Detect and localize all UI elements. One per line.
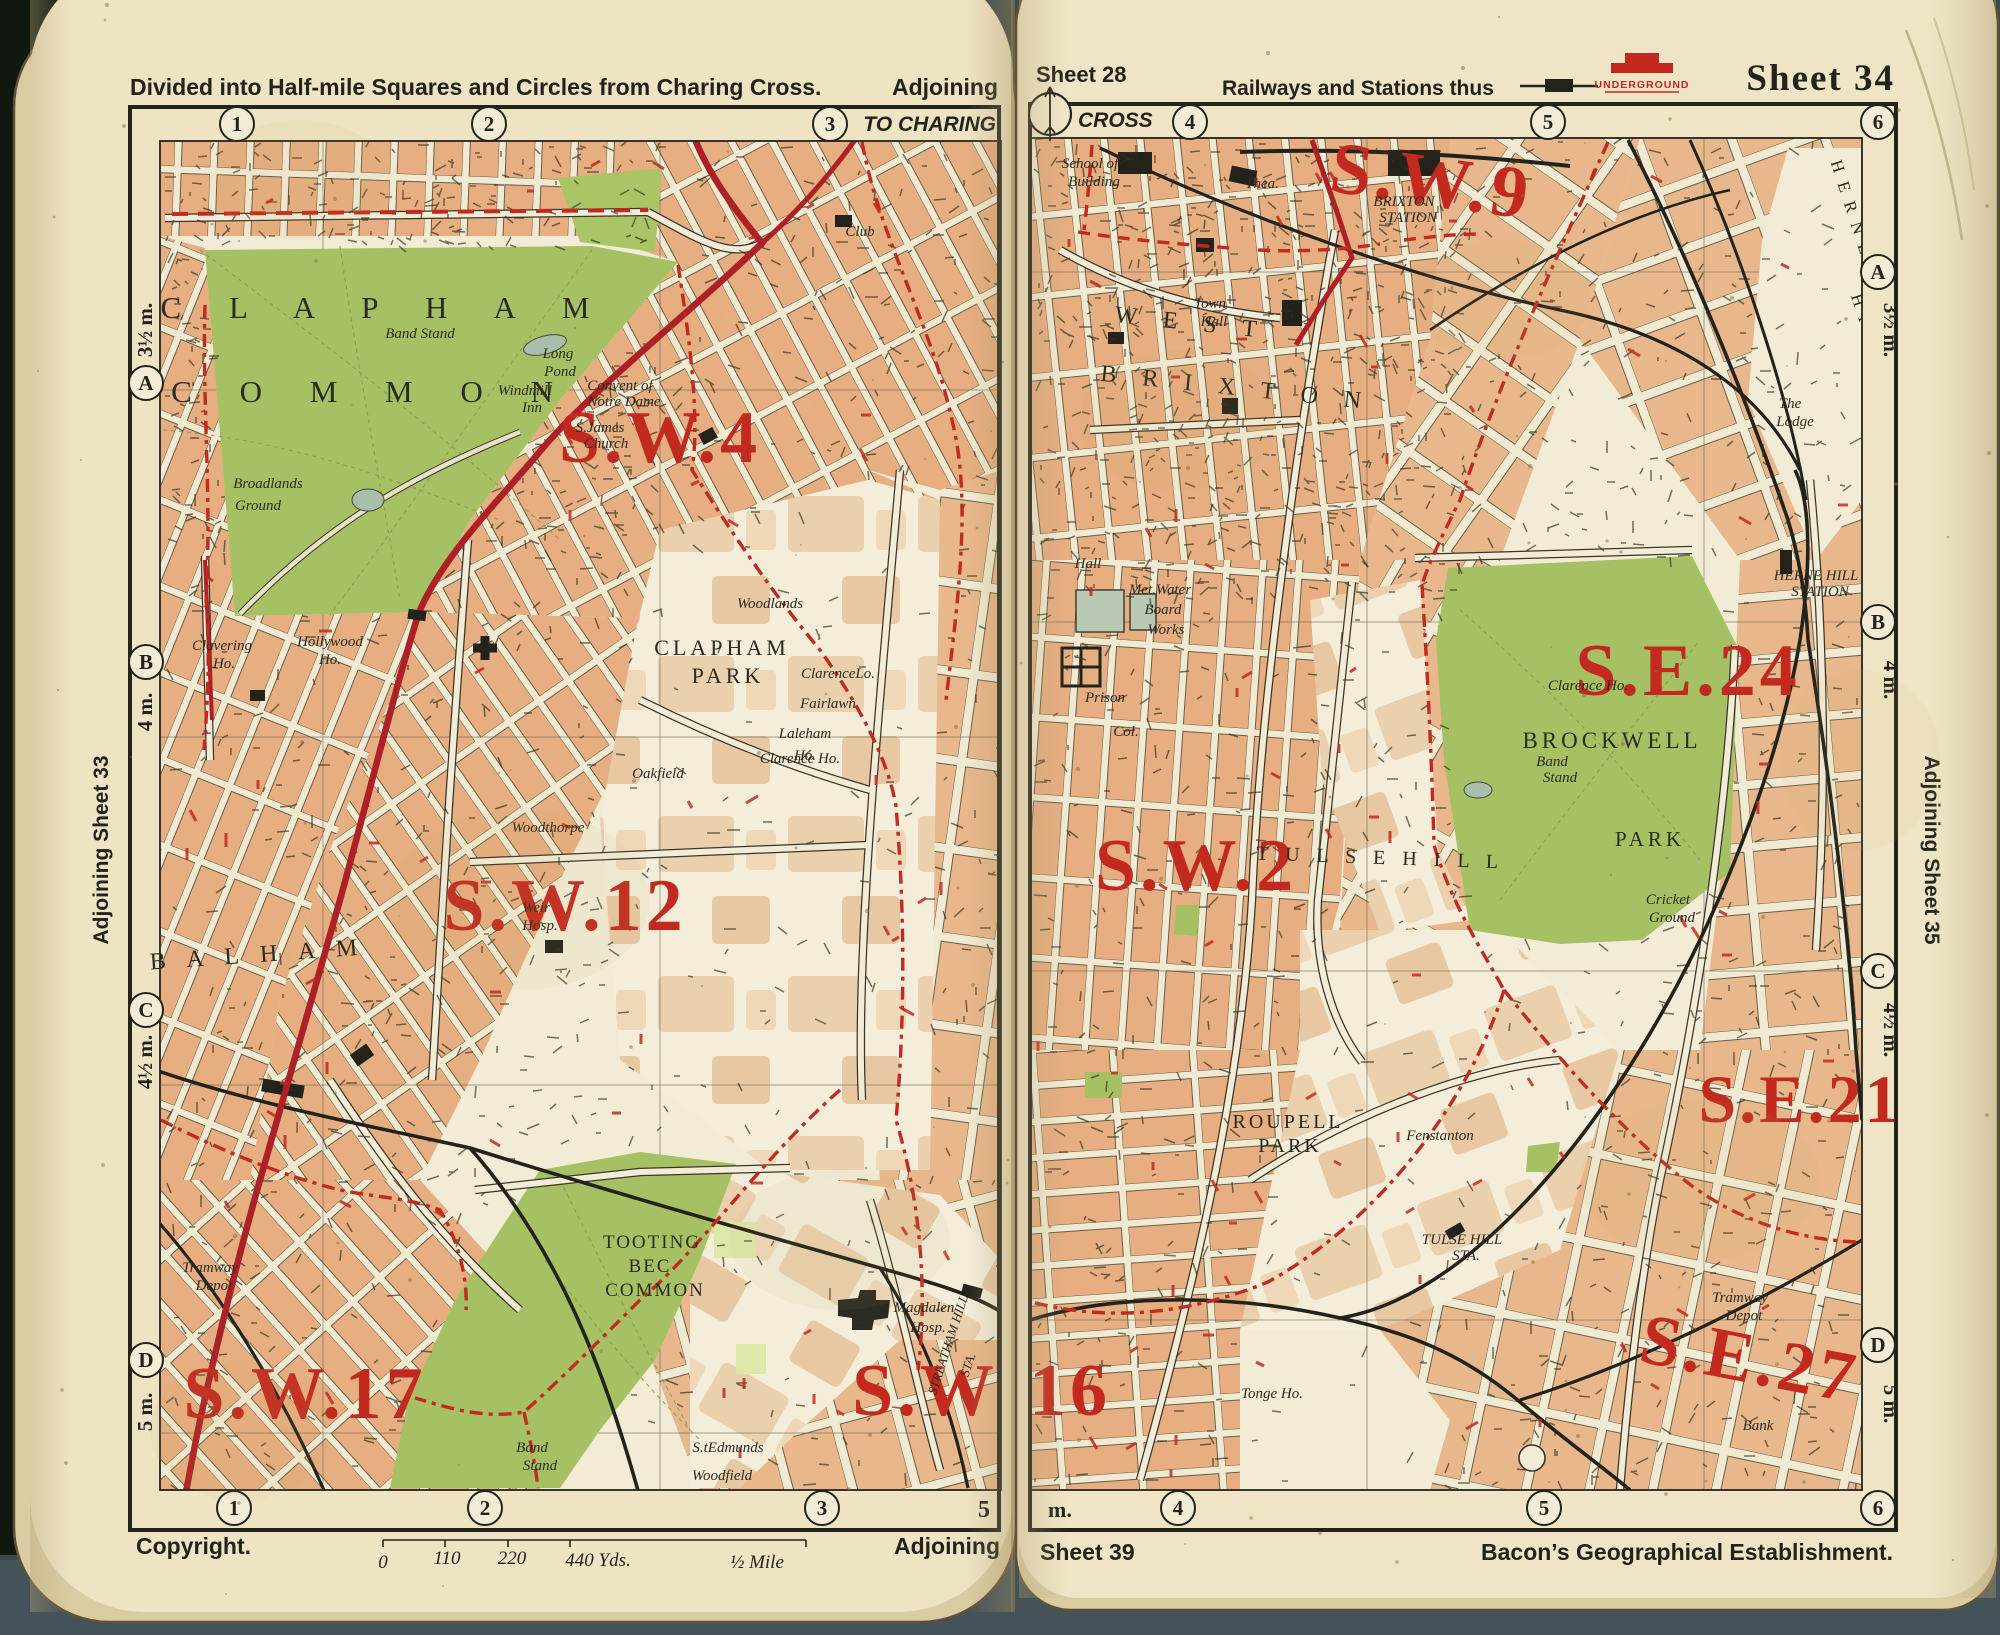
svg-text:Inn: Inn — [521, 400, 542, 416]
svg-text:Convent of: Convent of — [587, 378, 654, 394]
svg-text:Notre Dame: Notre Dame — [586, 394, 661, 410]
svg-text:Fairlawn: Fairlawn — [799, 696, 856, 712]
svg-text:5: 5 — [1539, 1496, 1550, 1520]
svg-text:5 m.: 5 m. — [1879, 1385, 1903, 1424]
svg-text:A: A — [138, 371, 154, 395]
svg-text:C L A P H A M: C L A P H A M — [161, 290, 610, 325]
svg-text:4: 4 — [1173, 1496, 1184, 1520]
svg-text:Sheet 34: Sheet 34 — [1746, 58, 1895, 99]
svg-text:Ground: Ground — [1649, 910, 1696, 926]
svg-text:Band: Band — [516, 1440, 548, 1456]
svg-text:Copyright.: Copyright. — [136, 1533, 251, 1559]
svg-text:½ Mile: ½ Mile — [730, 1552, 784, 1573]
svg-text:D: D — [138, 1348, 153, 1372]
svg-text:Cricket: Cricket — [1646, 892, 1691, 908]
svg-text:Fenstanton: Fenstanton — [1405, 1128, 1474, 1144]
svg-text:Stand: Stand — [523, 1458, 558, 1474]
svg-text:Long: Long — [542, 346, 574, 362]
svg-text:Broadlands: Broadlands — [233, 476, 303, 492]
svg-text:PARK: PARK — [1615, 827, 1685, 851]
svg-text:Laleham: Laleham — [778, 726, 832, 742]
svg-text:440 Yds.: 440 Yds. — [565, 1550, 630, 1571]
svg-text:BRIXTON: BRIXTON — [1373, 194, 1435, 210]
svg-text:UNDERGROUND: UNDERGROUND — [1595, 79, 1690, 91]
svg-text:S.tEdmunds: S.tEdmunds — [692, 1440, 763, 1456]
svg-text:Thea.: Thea. — [1245, 176, 1279, 192]
svg-text:Works: Works — [1148, 622, 1185, 638]
svg-text:S.E.24: S.E.24 — [1575, 630, 1801, 712]
svg-text:Town: Town — [1194, 296, 1226, 312]
svg-text:3½ m.: 3½ m. — [133, 303, 157, 357]
svg-text:Pond: Pond — [543, 364, 576, 380]
svg-text:TOOTING: TOOTING — [603, 1232, 701, 1253]
svg-text:3: 3 — [825, 112, 836, 136]
svg-text:S.W.2: S.W.2 — [1095, 825, 1297, 907]
svg-text:CLAPHAM: CLAPHAM — [654, 635, 790, 660]
svg-text:B: B — [139, 650, 153, 674]
svg-text:Tramway: Tramway — [182, 1260, 238, 1276]
svg-text:BROCKWELL: BROCKWELL — [1522, 728, 1701, 753]
svg-text:6: 6 — [1873, 110, 1884, 134]
svg-text:Hall: Hall — [1200, 314, 1228, 330]
svg-text:Clarence Ho.: Clarence Ho. — [760, 751, 840, 767]
svg-text:Clavering: Clavering — [192, 638, 252, 654]
svg-text:TULSE HILL: TULSE HILL — [1422, 1232, 1502, 1248]
svg-text:S.James: S.James — [576, 420, 625, 436]
svg-text:PARK: PARK — [1258, 1135, 1322, 1157]
svg-text:The: The — [1779, 396, 1802, 412]
svg-text:Building: Building — [1068, 174, 1120, 190]
svg-text:Band Stand: Band Stand — [385, 326, 455, 342]
svg-text:Bank: Bank — [1743, 1418, 1774, 1434]
svg-text:Prison: Prison — [1084, 690, 1125, 706]
svg-text:Tramway: Tramway — [1712, 1290, 1768, 1306]
svg-text:Hollywood: Hollywood — [296, 634, 363, 650]
svg-text:4 m.: 4 m. — [133, 693, 157, 732]
svg-text:2: 2 — [480, 1496, 491, 1520]
svg-text:3: 3 — [817, 1496, 828, 1520]
svg-text:Depot: Depot — [195, 1278, 233, 1294]
svg-text:PARK: PARK — [692, 663, 765, 688]
svg-text:CROSS: CROSS — [1078, 109, 1153, 132]
svg-text:Hosp.: Hosp. — [909, 1320, 945, 1336]
svg-text:Stand: Stand — [1543, 770, 1578, 786]
svg-text:Hall: Hall — [1074, 556, 1102, 572]
svg-text:ClarenceLo.: ClarenceLo. — [801, 666, 875, 682]
svg-text:Woodfield: Woodfield — [692, 1468, 753, 1484]
svg-text:Adjoining Sheet 33: Adjoining Sheet 33 — [90, 755, 113, 944]
svg-text:Ho.: Ho. — [318, 652, 341, 668]
svg-text:Tonge Ho.: Tonge Ho. — [1241, 1386, 1303, 1402]
svg-text:Club: Club — [845, 224, 875, 240]
svg-text:STATION: STATION — [1379, 210, 1438, 226]
svg-text:Ground: Ground — [235, 498, 282, 514]
svg-text:6: 6 — [1873, 1496, 1884, 1520]
svg-text:5: 5 — [1543, 110, 1554, 134]
svg-text:110: 110 — [433, 1548, 461, 1569]
svg-text:Church: Church — [584, 436, 628, 452]
svg-text:C: C — [1870, 959, 1885, 983]
svg-text:4½ m.: 4½ m. — [133, 1035, 157, 1089]
svg-text:Depot: Depot — [1725, 1308, 1763, 1324]
svg-text:Col.: Col. — [1113, 724, 1138, 740]
svg-text:Divided into Half-mile Squares: Divided into Half-mile Squares and Circl… — [130, 74, 821, 100]
svg-text:HERNE HILL: HERNE HILL — [1773, 568, 1859, 584]
svg-text:Oakfield: Oakfield — [632, 766, 684, 782]
svg-text:Board: Board — [1145, 602, 1182, 618]
svg-text:Woodlands: Woodlands — [737, 596, 803, 612]
svg-text:220: 220 — [498, 1548, 527, 1569]
svg-text:Clarence Ho.: Clarence Ho. — [1548, 678, 1628, 694]
svg-text:Ho.: Ho. — [212, 656, 235, 672]
svg-text:3½ m.: 3½ m. — [1879, 303, 1903, 357]
svg-text:Band: Band — [1536, 754, 1568, 770]
svg-text:STATION: STATION — [1791, 584, 1850, 600]
svg-text:Lodge: Lodge — [1775, 414, 1814, 430]
svg-text:Met.Water: Met.Water — [1128, 582, 1192, 598]
svg-text:School of: School of — [1062, 156, 1120, 172]
svg-text:4: 4 — [1185, 110, 1196, 134]
svg-text:STA.: STA. — [1452, 1248, 1480, 1264]
svg-text:1: 1 — [232, 112, 243, 136]
svg-text:2: 2 — [484, 112, 495, 136]
svg-text:BEC: BEC — [629, 1256, 672, 1277]
svg-text:Railways and Stations thus: Railways and Stations thus — [1222, 77, 1494, 100]
svg-text:B: B — [1871, 610, 1885, 634]
svg-text:ROUPELL: ROUPELL — [1233, 1111, 1344, 1133]
svg-text:Windmill: Windmill — [498, 383, 552, 399]
svg-text:COMMON: COMMON — [605, 1280, 705, 1301]
svg-text:A: A — [1870, 260, 1886, 284]
svg-text:0: 0 — [378, 1552, 388, 1573]
svg-text:C: C — [138, 998, 153, 1022]
svg-text:D: D — [1870, 1333, 1885, 1357]
svg-text:Bacon’s Geographical Establish: Bacon’s Geographical Establishment. — [1481, 1539, 1893, 1565]
svg-text:Magdalen: Magdalen — [893, 1300, 955, 1316]
svg-text:4½ m.: 4½ m. — [1879, 1003, 1903, 1057]
